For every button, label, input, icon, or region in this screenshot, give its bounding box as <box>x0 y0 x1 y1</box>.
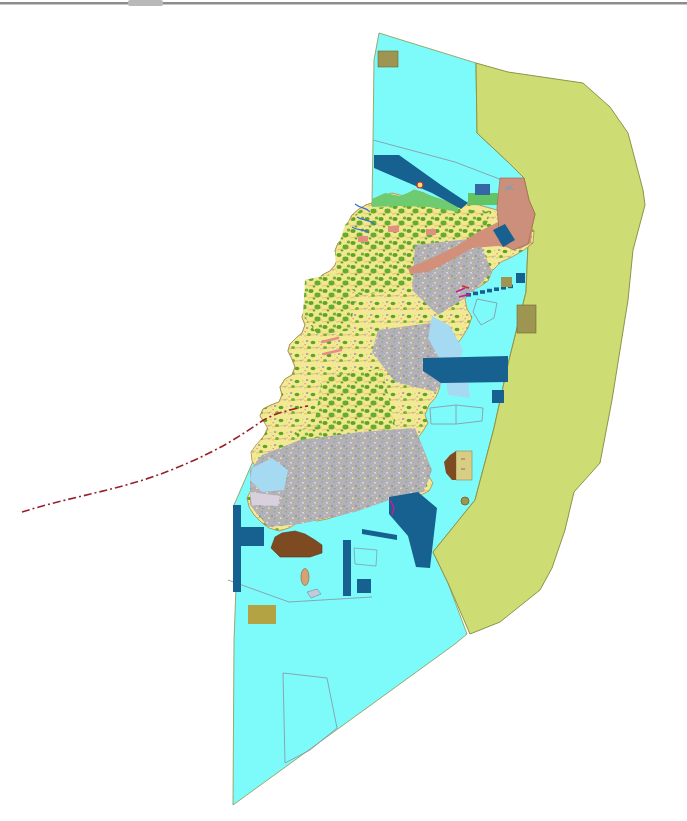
map-viewport[interactable] <box>0 0 687 821</box>
facility-square-ne2 <box>516 273 525 283</box>
facility-square-south <box>357 579 371 593</box>
facility-square-east <box>492 390 504 403</box>
top-border-line <box>0 2 687 4</box>
salmon-spot-2 <box>358 236 368 242</box>
point-symbol <box>417 182 423 188</box>
top-border <box>0 0 687 6</box>
harbor-basin-east[interactable] <box>423 356 508 383</box>
khaki-rect-east <box>517 305 536 333</box>
khaki-rect-top <box>378 51 398 67</box>
khaki-rect-bottom <box>248 605 276 624</box>
top-border-highlight <box>0 4 687 5</box>
khaki-marker-circle <box>461 497 469 505</box>
map-canvas[interactable] <box>0 0 687 821</box>
salmon-spot-1 <box>388 226 399 232</box>
facility-rect-ne <box>475 184 490 195</box>
salmon-spot-3 <box>426 229 436 235</box>
khaki-rect-ne-small <box>501 277 512 287</box>
pier-bar-south <box>343 540 351 596</box>
top-border-notch <box>128 0 163 6</box>
tan-islet <box>301 569 309 586</box>
